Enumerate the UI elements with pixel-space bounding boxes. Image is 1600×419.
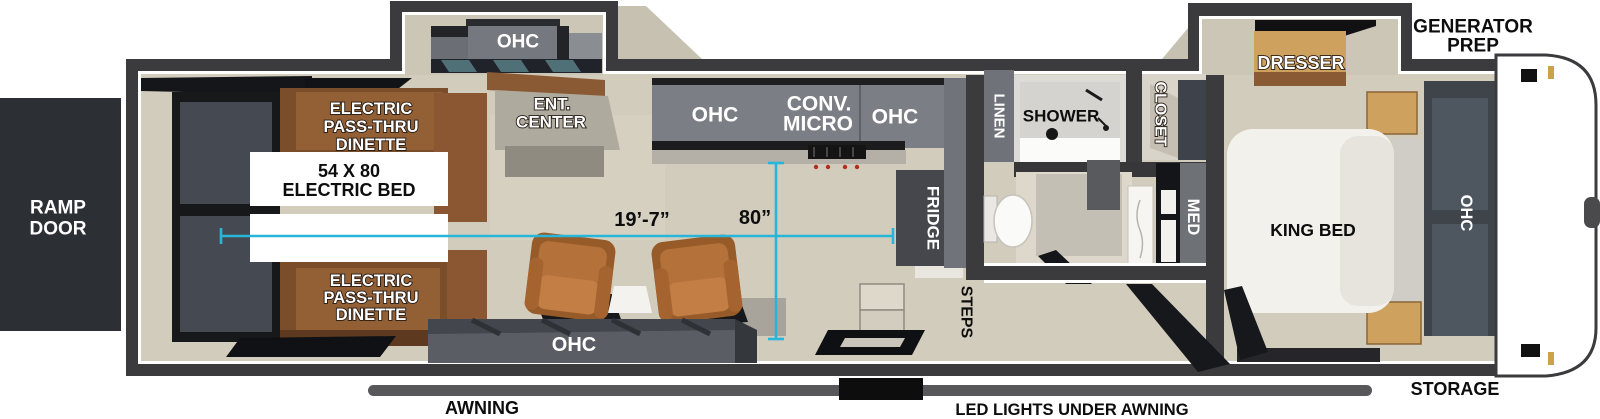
svg-text:ELECTRIC: ELECTRIC <box>330 100 413 118</box>
svg-text:RAMP: RAMP <box>30 198 86 219</box>
svg-text:DOOR: DOOR <box>30 219 87 240</box>
svg-text:80”: 80” <box>739 207 771 229</box>
svg-text:PASS-THRU: PASS-THRU <box>323 289 418 307</box>
svg-text:MED: MED <box>1184 199 1202 236</box>
svg-text:DINETTE: DINETTE <box>336 136 407 154</box>
svg-text:DRESSER: DRESSER <box>1257 53 1344 73</box>
svg-text:CENTER: CENTER <box>516 113 586 132</box>
svg-text:OHC: OHC <box>872 106 919 129</box>
svg-text:OHC: OHC <box>1457 195 1475 232</box>
svg-text:KING BED: KING BED <box>1270 220 1356 240</box>
svg-text:STEPS: STEPS <box>958 286 975 339</box>
svg-text:ELECTRIC BED: ELECTRIC BED <box>282 180 415 200</box>
svg-text:OHC: OHC <box>552 334 596 356</box>
svg-text:DINETTE: DINETTE <box>336 306 407 324</box>
svg-text:SHOWER: SHOWER <box>1023 107 1100 126</box>
svg-text:ENT.: ENT. <box>534 95 571 114</box>
svg-text:PASS-THRU: PASS-THRU <box>323 118 418 136</box>
svg-text:CLOSET: CLOSET <box>1152 82 1169 147</box>
svg-text:ELECTRIC: ELECTRIC <box>330 272 413 290</box>
svg-text:OHC: OHC <box>497 32 540 53</box>
svg-text:LED LIGHTS UNDER AWNING: LED LIGHTS UNDER AWNING <box>955 401 1188 419</box>
svg-text:MICRO: MICRO <box>783 113 853 136</box>
svg-text:19’-7”: 19’-7” <box>614 209 670 231</box>
svg-text:AWNING: AWNING <box>445 398 519 418</box>
svg-text:FRIDGE: FRIDGE <box>924 186 943 250</box>
svg-text:54 X 80: 54 X 80 <box>318 161 380 181</box>
svg-text:GENERATOR: GENERATOR <box>1413 17 1533 38</box>
svg-text:STORAGE: STORAGE <box>1411 379 1500 399</box>
svg-text:PREP: PREP <box>1447 36 1499 57</box>
svg-text:LINEN: LINEN <box>991 94 1008 139</box>
svg-text:OHC: OHC <box>692 104 739 127</box>
